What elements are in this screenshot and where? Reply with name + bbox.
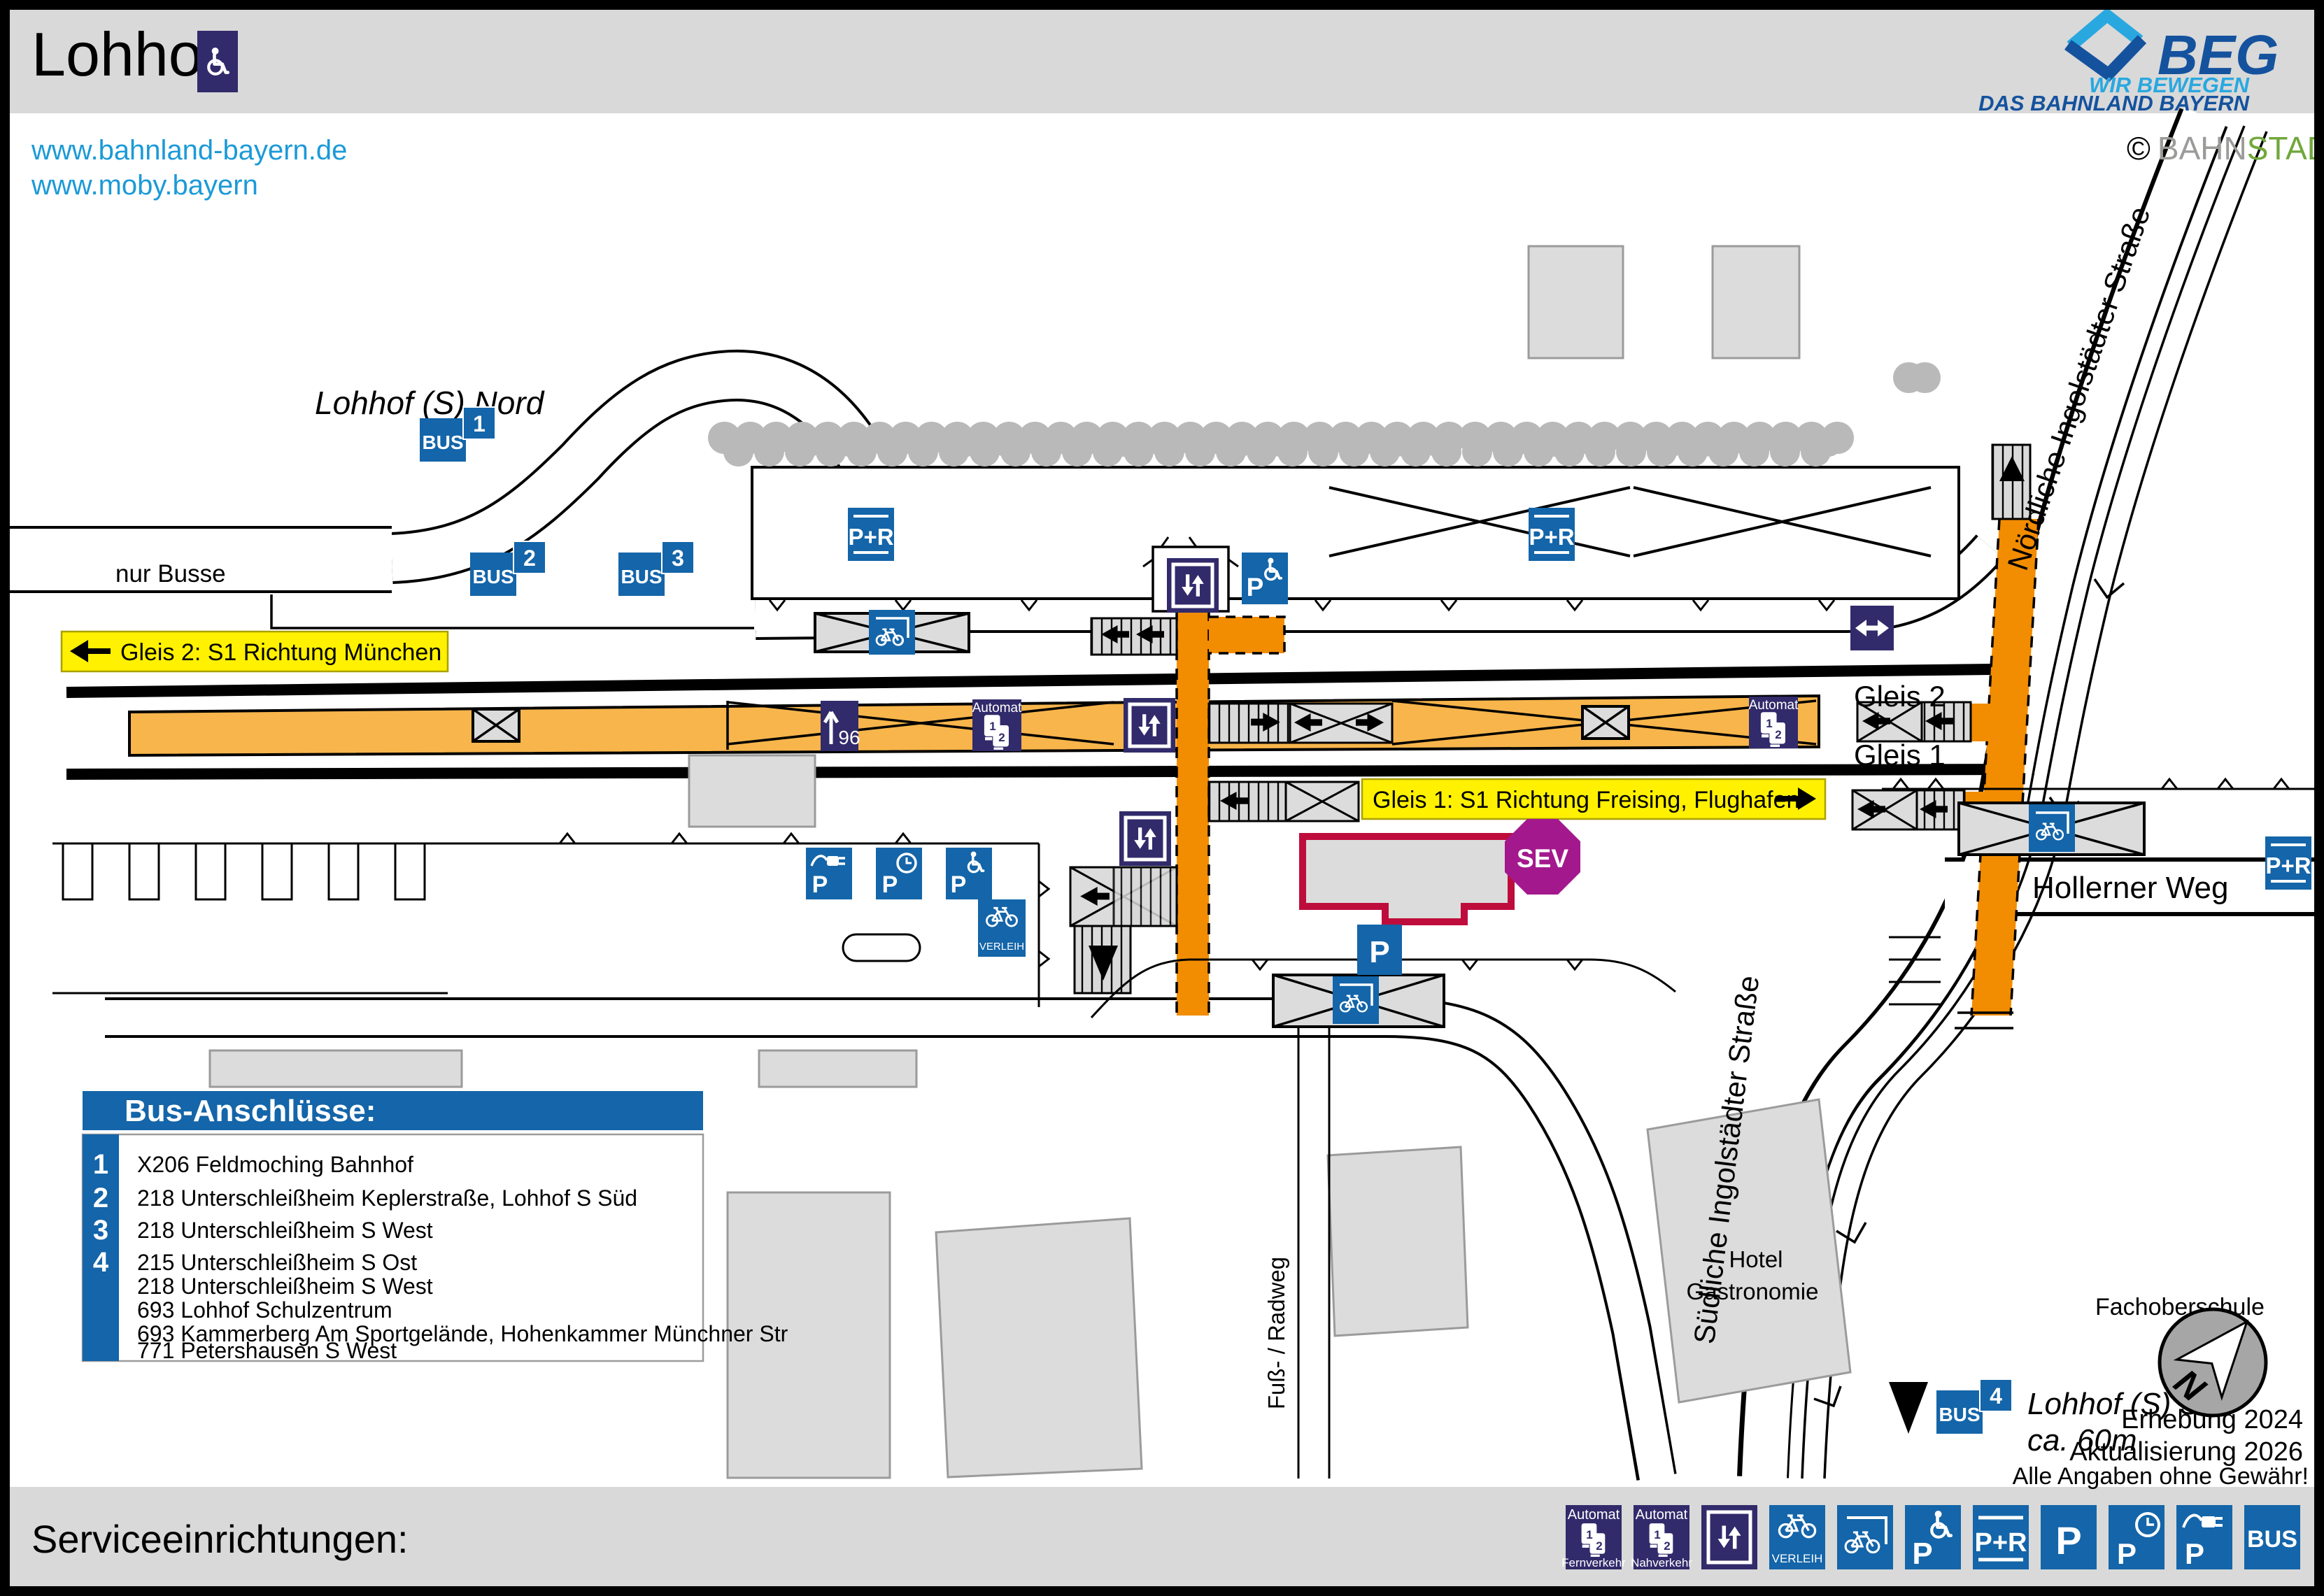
building [689, 755, 815, 827]
svg-text:P: P [2185, 1537, 2204, 1570]
bike-parking-icon-east [2029, 804, 2075, 852]
bus-connection-line: 218 Unterschleißheim Keplerstraße, Lohho… [137, 1185, 637, 1211]
svg-text:P+R: P+R [848, 524, 893, 550]
accessible-parking-icon-north: P [1242, 553, 1288, 604]
bus-connection-line: 215 Unterschleißheim S Ost [137, 1250, 417, 1275]
copyright-icon: © [2127, 130, 2151, 166]
ev-charging-parking-icon-legend: P [2176, 1505, 2232, 1570]
svg-text:2: 2 [523, 546, 536, 571]
bike-rental-icon-legend: VERLEIH [1769, 1505, 1825, 1569]
ticket-machine-longdistance-icon: Automat 1 2 Fernverkehr [1561, 1505, 1626, 1569]
bike-rental-icon: VERLEIH [978, 899, 1026, 957]
svg-text:BUS: BUS [2247, 1526, 2297, 1553]
svg-text:1: 1 [989, 720, 996, 733]
south-track-stairs [1209, 782, 1359, 821]
sev-badge-text: SEV [1517, 844, 1568, 873]
bus-connection-number: 3 [93, 1215, 108, 1246]
label-fernverkehr: Fernverkehr [1561, 1556, 1626, 1569]
svg-text:2: 2 [1664, 1539, 1670, 1553]
accessible-parking-icon-south: P [946, 848, 992, 899]
svg-text:P: P [2055, 1518, 2081, 1562]
footer-service-icons: Automat 1 2 Fernverkehr Automat 1 2 Nahv… [1561, 1505, 2300, 1571]
footer-title: Serviceeinrichtungen: [31, 1517, 409, 1561]
elevator-icon-south [1119, 811, 1171, 866]
bus-connections-title: Bus-Anschlüsse: [125, 1094, 376, 1128]
elevator-icon-north [1167, 558, 1219, 613]
bus-connection-number: 1 [93, 1149, 108, 1180]
note-survey: Erhebung 2024 [2121, 1405, 2303, 1434]
platform-length-marker: 96 [821, 701, 860, 751]
svg-text:BUS: BUS [472, 566, 513, 587]
svg-text:P: P [951, 871, 967, 898]
link-moby-bayern[interactable]: www.moby.bayern [31, 170, 258, 201]
bus-connection-line: 218 Unterschleißheim S West [137, 1274, 433, 1299]
short-term-parking-icon-legend: P [2109, 1505, 2164, 1570]
svg-text:P+R: P+R [2265, 853, 2311, 878]
platform-stairs-east [1209, 704, 1392, 743]
station-map-canvas: Hotel Gastronomie Fuß- / Radweg Nördlich… [0, 0, 2324, 1596]
header-band [10, 10, 2314, 113]
svg-text:P: P [882, 871, 898, 898]
svg-text:P+R: P+R [1529, 524, 1574, 550]
svg-text:4: 4 [1990, 1383, 2002, 1409]
svg-text:VERLEIH: VERLEIH [1772, 1552, 1823, 1565]
svg-text:P: P [1912, 1537, 1932, 1571]
fuss-radweg-label: Fuß- / Radweg [1263, 1257, 1289, 1409]
pr-icon-lot-west: P+R [848, 508, 894, 561]
svg-text:BUS: BUS [422, 432, 463, 453]
double-arrow-crossing-icon [1850, 606, 1894, 650]
bus-connection-line: 693 Lohhof Schulzentrum [137, 1297, 392, 1323]
label-nur-busse: nur Busse [115, 560, 226, 587]
park-and-ride-icon-legend: P+R [1973, 1505, 2029, 1569]
parking-icon-legend: P [2041, 1505, 2097, 1569]
svg-text:P: P [1369, 935, 1389, 969]
svg-text:P: P [2117, 1537, 2137, 1570]
direction-label-gleis2-text: Gleis 2: S1 Richtung München [120, 639, 441, 666]
svg-text:2: 2 [998, 731, 1005, 744]
sev-badge: SEV [1505, 819, 1580, 895]
bike-parking-icon-south [1333, 976, 1379, 1024]
page-title: Lohhof [31, 20, 220, 89]
elevator-icon-platform [1124, 698, 1175, 753]
bus-connection-number: 2 [93, 1183, 108, 1213]
svg-text:1: 1 [1586, 1528, 1592, 1541]
label-lohhof-nord: Lohhof (S) Nord [315, 385, 545, 421]
bike-parking-icon-legend [1837, 1505, 1893, 1569]
short-term-parking-icon: P [876, 848, 922, 899]
svg-text:2: 2 [1596, 1539, 1602, 1553]
bus-connection-line: 771 Petershausen S West [137, 1338, 397, 1363]
accessible-parking-icon-legend: P [1905, 1505, 1961, 1571]
hotel-label-line1: Hotel [1729, 1246, 1783, 1272]
north-stairs [1091, 618, 1177, 655]
svg-text:Automat: Automat [1636, 1507, 1688, 1523]
note-disclaimer: Alle Angaben ohne Gewähr! [2013, 1463, 2309, 1490]
bus-icon-legend: BUS [2244, 1505, 2300, 1569]
svg-text:1: 1 [1766, 717, 1772, 730]
building [1529, 246, 1623, 358]
svg-text:96: 96 [838, 727, 860, 748]
note-update: Aktualisierung 2026 [2069, 1437, 2303, 1467]
label-gleis2: Gleis 2 [1854, 680, 1946, 713]
accessibility-badge [197, 31, 238, 92]
svg-text:BUS: BUS [621, 566, 662, 587]
beg-tagline2: DAS BAHNLAND BAYERN [1978, 91, 2250, 115]
bike-parking-icon-northwest [869, 610, 915, 655]
svg-text:P+R: P+R [1975, 1528, 2027, 1558]
direction-label-gleis2: Gleis 2: S1 Richtung München [62, 632, 448, 671]
svg-text:3: 3 [672, 546, 684, 571]
svg-text:Automat: Automat [1568, 1507, 1620, 1523]
svg-text:BUS: BUS [1939, 1404, 1980, 1425]
street-label-hollerner: Hollerner Weg [2032, 871, 2228, 905]
svg-text:P: P [812, 871, 828, 898]
north-parking-lot [752, 467, 1959, 610]
elevator-icon-legend [1701, 1505, 1757, 1569]
link-bahnland-bayern[interactable]: www.bahnland-bayern.de [31, 135, 347, 166]
svg-text:P: P [1247, 573, 1264, 601]
direction-label-gleis1-text: Gleis 1: S1 Richtung Freising, Flughafen [1373, 787, 1799, 813]
svg-text:1: 1 [473, 411, 486, 436]
station-building [1303, 836, 1511, 922]
building [1713, 246, 1799, 358]
svg-text:1: 1 [1654, 1528, 1660, 1541]
ticket-machine-icon-platform-east: Automat 1 2 [1749, 697, 1799, 748]
bus-connection-line: X206 Feldmoching Bahnhof [137, 1152, 413, 1177]
ticket-machine-local-icon: Automat 1 2 Nahverkehr [1631, 1505, 1692, 1569]
svg-text:2: 2 [1775, 728, 1781, 741]
svg-text:Automat: Automat [1749, 698, 1799, 713]
parking-icon-station: P [1357, 925, 1402, 975]
bus-connection-line: 218 Unterschleißheim S West [137, 1218, 433, 1243]
ticket-machine-icon-platform-west: Automat 1 2 [972, 699, 1022, 751]
pr-icon-lot-east: P+R [1529, 508, 1575, 561]
svg-text:VERLEIH: VERLEIH [979, 941, 1024, 953]
bus-connection-number: 4 [93, 1247, 109, 1278]
platform-shelter [473, 709, 519, 741]
svg-text:Automat: Automat [972, 701, 1022, 715]
direction-label-gleis1: Gleis 1: S1 Richtung Freising, Flughafen [1362, 779, 1825, 819]
ev-charging-parking-icon: P [806, 848, 852, 899]
east-stairs-gleis1 [1852, 790, 1964, 829]
label-nahverkehr: Nahverkehr [1631, 1556, 1692, 1569]
label-gleis1: Gleis 1 [1854, 739, 1946, 771]
platform-shelter [1582, 706, 1629, 739]
